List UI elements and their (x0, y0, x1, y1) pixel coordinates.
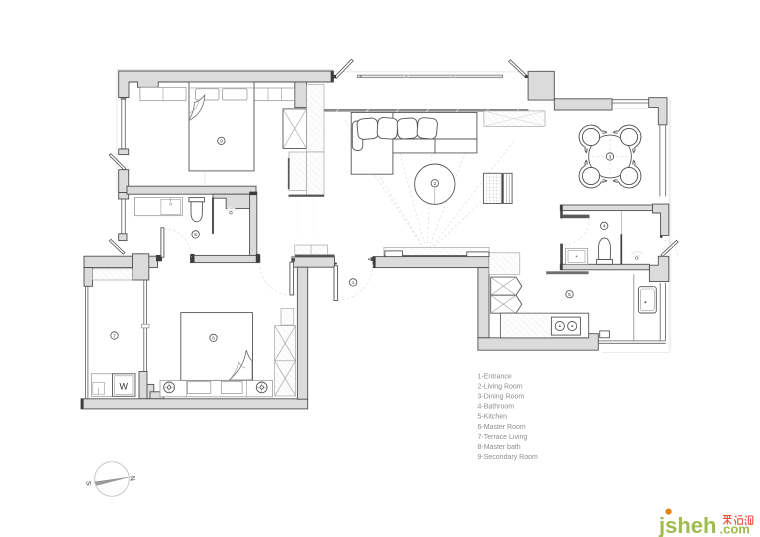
svg-text:jsheh: jsheh (658, 513, 716, 537)
svg-text:6-Master Room: 6-Master Room (478, 424, 526, 431)
svg-text:8-Master bath: 8-Master bath (478, 444, 521, 451)
svg-text:1-Entrance: 1-Entrance (478, 373, 512, 380)
svg-text:5-Kitchen: 5-Kitchen (478, 414, 508, 421)
svg-text:9-Secondary Room: 9-Secondary Room (478, 454, 538, 461)
svg-text:4: 4 (603, 224, 606, 230)
svg-text:3: 3 (609, 154, 612, 160)
svg-text:3-Dining Room: 3-Dining Room (478, 394, 525, 401)
svg-text:2-Living Room: 2-Living Room (478, 383, 523, 390)
svg-text:7: 7 (113, 333, 116, 339)
svg-text:5: 5 (568, 292, 571, 298)
svg-text:6: 6 (212, 336, 215, 342)
svg-text:1: 1 (352, 280, 355, 286)
svg-text:4-Bathroom: 4-Bathroom (478, 404, 515, 411)
svg-text:7-Terrace Living: 7-Terrace Living (478, 434, 528, 441)
svg-text:2: 2 (433, 181, 436, 187)
svg-text:8: 8 (194, 232, 197, 238)
svg-text:9: 9 (220, 139, 223, 145)
svg-text:W: W (119, 381, 128, 391)
